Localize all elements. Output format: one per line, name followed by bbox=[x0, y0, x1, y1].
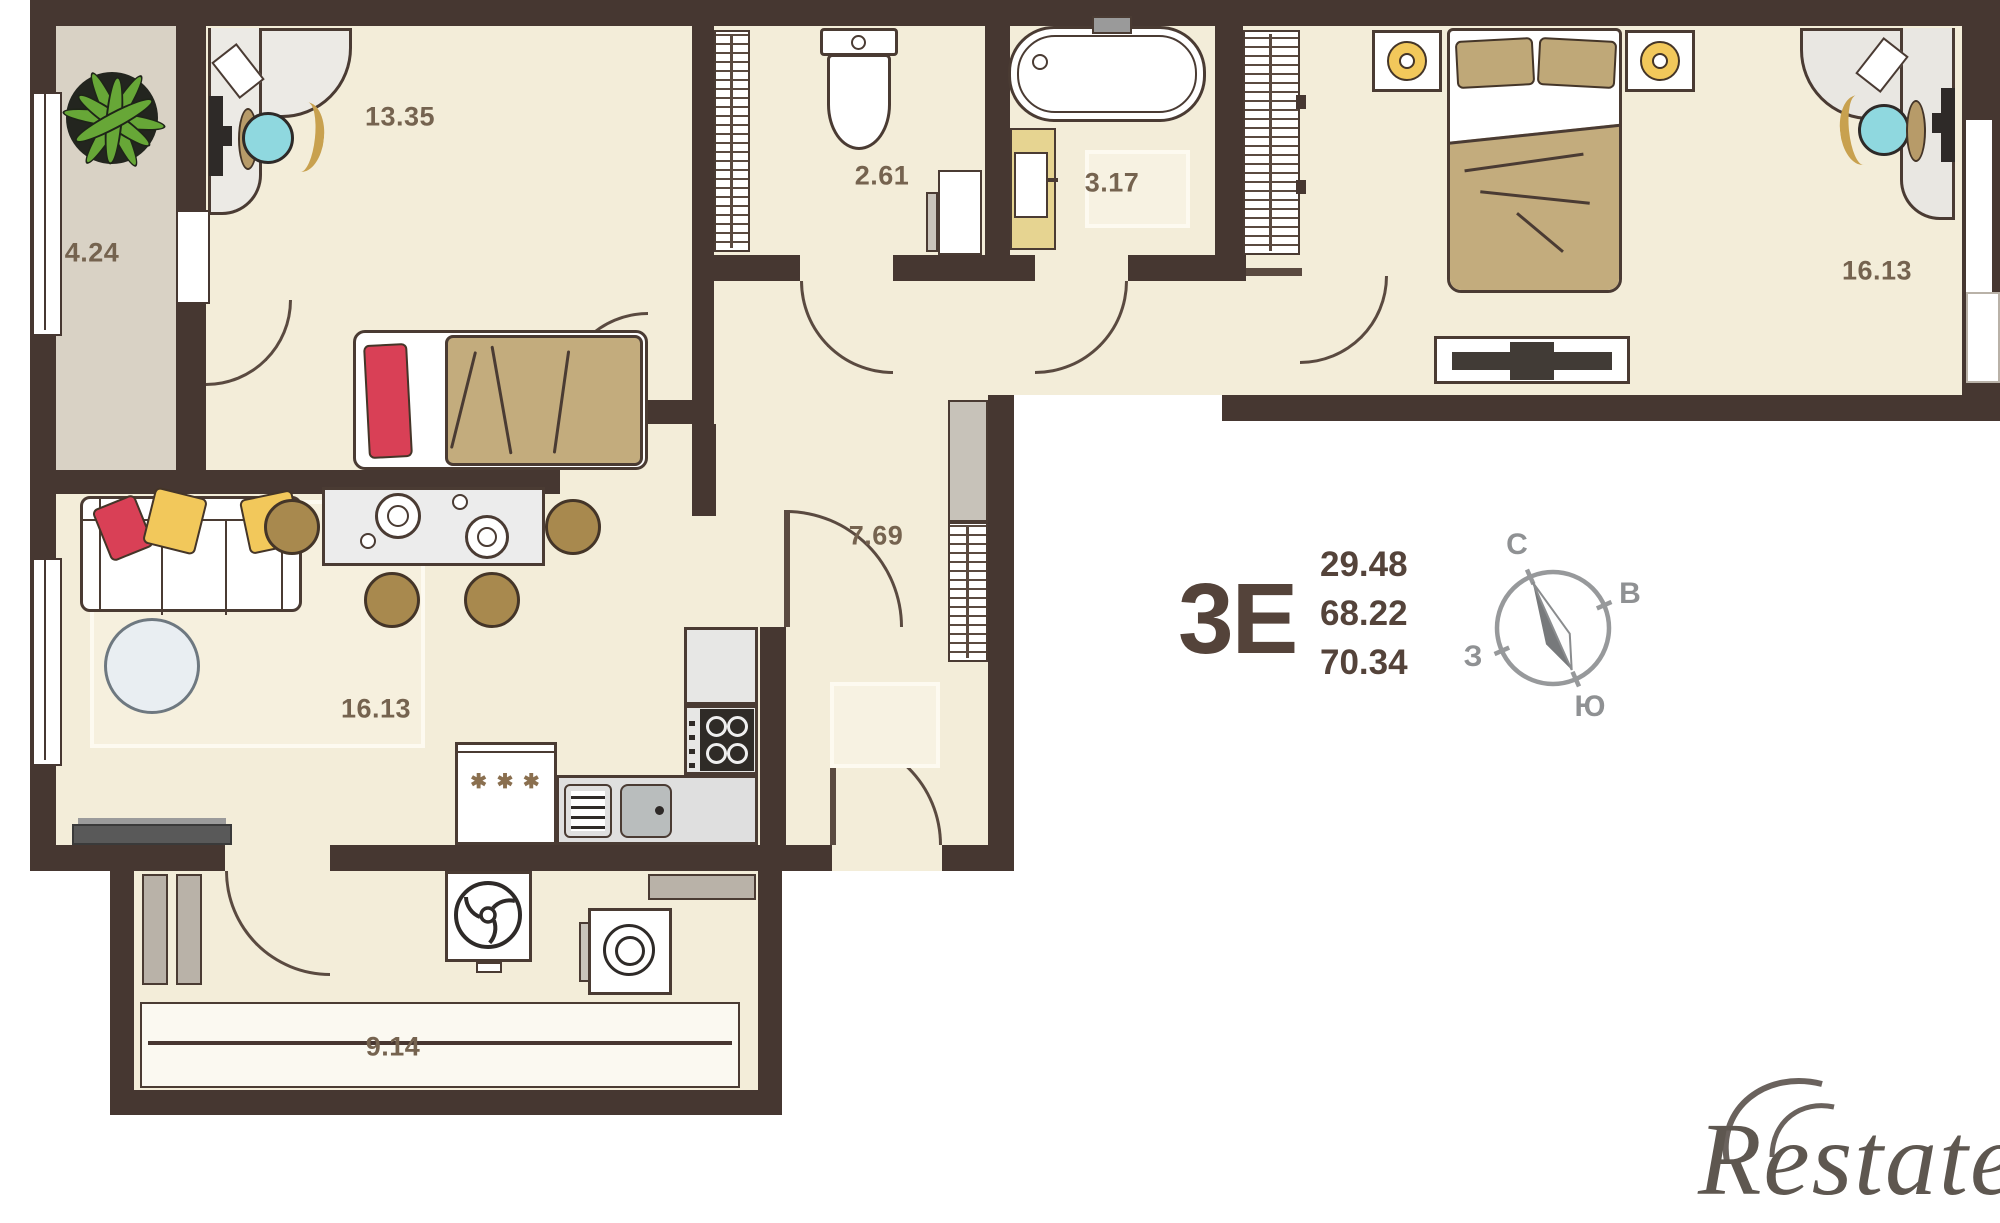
entrance-mat bbox=[830, 682, 940, 768]
bath-door-gap bbox=[1035, 255, 1128, 281]
coffee-table bbox=[104, 618, 200, 714]
pillow-tan bbox=[1455, 37, 1535, 89]
burner bbox=[727, 743, 748, 764]
dining-table bbox=[322, 487, 545, 566]
compass-rose bbox=[1487, 562, 1619, 694]
plate-small bbox=[360, 533, 376, 549]
entrance-door-gap bbox=[832, 845, 942, 871]
compass-east: В bbox=[1619, 577, 1641, 611]
oven-handle-line bbox=[458, 751, 554, 753]
hall-shelf bbox=[948, 400, 988, 522]
bedroom2-door-leaf bbox=[1246, 268, 1302, 276]
burner bbox=[706, 743, 727, 764]
tv-bedroom2-wall-mount bbox=[1932, 113, 1941, 133]
kitchen-sink-drain bbox=[655, 806, 664, 815]
closet-shaft-line bbox=[1269, 34, 1272, 251]
utility-cabinet-panel bbox=[142, 874, 168, 985]
room-label-bedroom1: 13.35 bbox=[365, 102, 435, 133]
pillow-red bbox=[363, 343, 413, 459]
plate-small bbox=[452, 494, 468, 510]
tv-bedroom1 bbox=[209, 96, 223, 176]
burner bbox=[727, 716, 748, 737]
wall-utility-right bbox=[758, 871, 782, 1115]
wall-kitchen-side bbox=[760, 627, 786, 845]
oven-marks: ✱ ✱ ✱ bbox=[458, 769, 554, 794]
room-label-utility: 9.14 bbox=[366, 1032, 421, 1063]
plate-inner bbox=[387, 505, 409, 527]
toilet-cabinet bbox=[938, 170, 982, 255]
wall-utility-left bbox=[110, 871, 134, 1115]
fan-foot bbox=[476, 962, 502, 973]
wall-hall-right bbox=[988, 395, 1014, 845]
cooktop bbox=[700, 709, 754, 771]
wall-bedroom1-right bbox=[692, 26, 714, 424]
wall-bedroom2-bottom bbox=[1222, 395, 2000, 421]
dish-rack bbox=[564, 784, 612, 838]
blanket-double bbox=[1447, 124, 1622, 293]
utility-wardrobe-rod bbox=[148, 1041, 732, 1045]
bath-faucet bbox=[1092, 16, 1132, 34]
area-total: 68.22 bbox=[1320, 589, 1408, 638]
unit-areas: 29.48 68.22 70.34 bbox=[1320, 540, 1408, 687]
wall-hall-stub bbox=[692, 424, 716, 516]
room-label-hallway: 7.69 bbox=[849, 521, 904, 552]
dining-chair bbox=[464, 572, 520, 628]
toilet-button bbox=[851, 35, 866, 50]
closet-hinge bbox=[1296, 95, 1306, 109]
utility-cabinet-panel bbox=[176, 874, 202, 985]
room-label-living: 16.13 bbox=[341, 694, 411, 725]
oven: ✱ ✱ ✱ bbox=[455, 742, 557, 845]
area-living: 29.48 bbox=[1320, 540, 1408, 589]
fan-icon bbox=[451, 878, 525, 952]
room-label-bathroom: 3.17 bbox=[1085, 168, 1140, 199]
plate-inner bbox=[477, 527, 497, 547]
bathtub-inner bbox=[1017, 35, 1197, 113]
dining-chair bbox=[545, 499, 601, 555]
hall-wardrobe-line bbox=[966, 526, 969, 658]
room-label-bedroom2: 16.13 bbox=[1842, 256, 1912, 287]
area-total-balcony: 70.34 bbox=[1320, 638, 1408, 687]
toilet-door-gap bbox=[800, 255, 893, 281]
unit-label: 3Е bbox=[1178, 562, 1296, 677]
vent-fan-unit bbox=[445, 871, 532, 962]
balcony-door-gap bbox=[176, 210, 210, 304]
dining-chair bbox=[264, 499, 320, 555]
tv-living-top bbox=[78, 818, 226, 824]
utility-door-gap bbox=[225, 845, 330, 871]
watermark-text: Restate bbox=[1698, 1100, 2000, 1219]
bath-sink-tap bbox=[1046, 178, 1058, 182]
wall-bath-closet bbox=[1215, 26, 1243, 255]
compass-south: Ю bbox=[1575, 690, 1606, 724]
bath-sink bbox=[1014, 152, 1048, 218]
tv-bedroom1-mount bbox=[223, 126, 232, 146]
living-window bbox=[32, 558, 62, 766]
tv-living bbox=[72, 824, 232, 845]
bed-double bbox=[1447, 28, 1622, 293]
closet-hinge bbox=[1296, 180, 1306, 194]
wall-wet-bottom bbox=[692, 255, 1246, 281]
tv-bedroom2-wall bbox=[1941, 88, 1955, 162]
compass-west: З bbox=[1464, 640, 1483, 674]
toilet-bowl bbox=[827, 54, 891, 150]
tv-bedroom2-base bbox=[1510, 342, 1554, 380]
burner bbox=[706, 716, 727, 737]
compass-needle bbox=[1521, 577, 1584, 675]
desk-chair bbox=[1858, 104, 1910, 156]
bathtub-drain bbox=[1032, 54, 1048, 70]
toilet-cabinet-side bbox=[926, 192, 938, 252]
pillow-tan bbox=[1537, 37, 1617, 89]
fridge bbox=[684, 627, 758, 705]
compass-north: С bbox=[1506, 528, 1528, 562]
utility-wardrobe bbox=[140, 1002, 740, 1088]
sofa-seat-line bbox=[225, 519, 227, 615]
balcony-window bbox=[32, 92, 62, 336]
cooktop-knobs bbox=[689, 712, 695, 768]
chair-back-ellipse bbox=[1906, 100, 1926, 162]
floor-plan: ✱ ✱ ✱ 4.24 13.35 2.61 3.17 16.13 7.69 16… bbox=[0, 0, 2000, 1223]
bedroom2-window bbox=[1964, 118, 1994, 296]
living-window-frame bbox=[44, 560, 46, 760]
room-label-toilet: 2.61 bbox=[855, 161, 910, 192]
balcony-window-frame bbox=[44, 94, 46, 330]
bedroom2-window-sill bbox=[1966, 292, 2000, 383]
utility-shelf bbox=[648, 874, 756, 900]
wall-toilet-bath bbox=[985, 26, 1010, 255]
wall-utility-bottom bbox=[110, 1090, 782, 1115]
kitchen-sink bbox=[620, 784, 672, 838]
wall-top bbox=[30, 0, 2000, 26]
lamp-center bbox=[1399, 53, 1415, 69]
washer-door-inner bbox=[615, 936, 645, 966]
lamp-center bbox=[1652, 53, 1668, 69]
dining-chair bbox=[364, 572, 420, 628]
vent-shaft-line bbox=[730, 34, 733, 248]
room-label-balcony: 4.24 bbox=[65, 238, 120, 269]
